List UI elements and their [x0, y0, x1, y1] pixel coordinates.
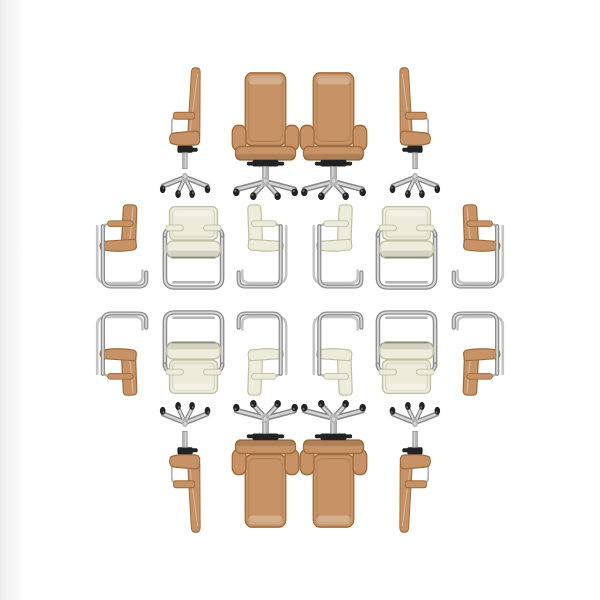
- left-edge-shade: [0, 0, 24, 600]
- office-chair-profile: [382, 400, 445, 534]
- office-chair-front: [297, 70, 370, 200]
- cantilever-chair-front: [365, 204, 448, 299]
- cantilever-chair-front: [152, 204, 235, 299]
- chair-collage: [0, 0, 600, 600]
- office-chair-profile: [155, 66, 218, 200]
- office-chair-profile: [155, 400, 218, 534]
- office-chair-front: [297, 400, 370, 530]
- cantilever-chair-profile: [301, 301, 365, 397]
- cantilever-chair-profile: [84, 301, 150, 397]
- cantilever-chair-profile: [235, 301, 299, 397]
- office-chair-front: [229, 400, 302, 530]
- cantilever-chair-profile: [84, 203, 150, 299]
- office-chair-front: [229, 70, 302, 200]
- cantilever-chair-front: [365, 301, 448, 396]
- cantilever-chair-profile: [301, 203, 365, 299]
- cantilever-chair-profile: [450, 301, 516, 397]
- cantilever-chair-front: [152, 301, 235, 396]
- cantilever-chair-profile: [235, 203, 299, 299]
- office-chair-profile: [382, 66, 445, 200]
- cantilever-chair-profile: [450, 203, 516, 299]
